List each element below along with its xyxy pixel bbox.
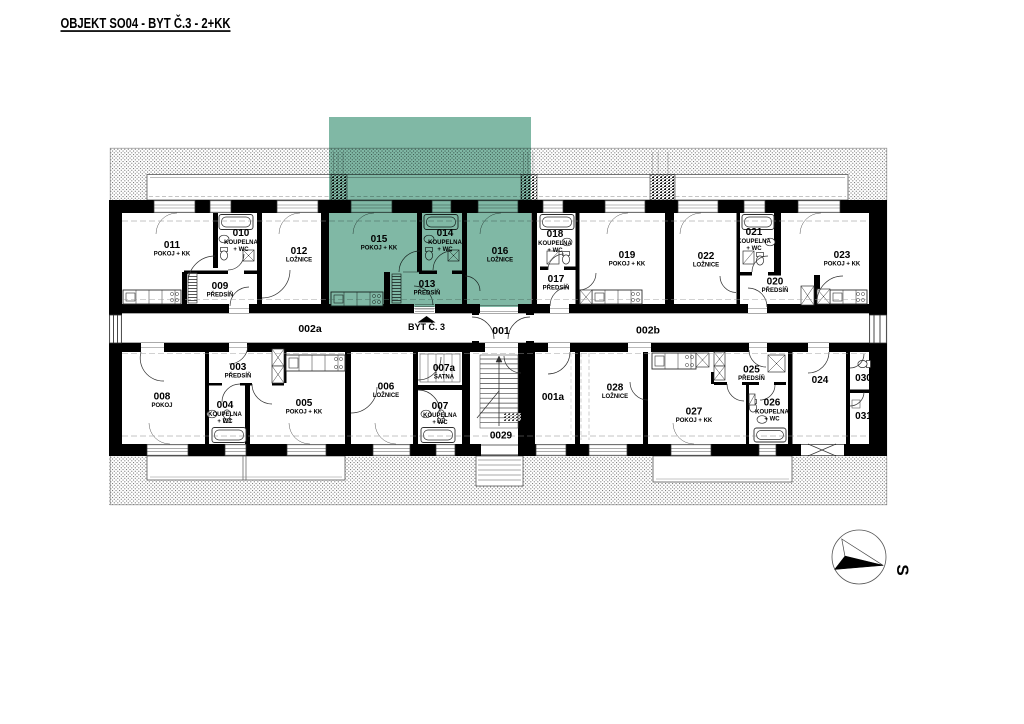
svg-text:ŠATNA: ŠATNA — [434, 373, 455, 381]
svg-text:KOUPELNA: KOUPELNA — [208, 412, 242, 418]
svg-text:001a: 001a — [542, 392, 565, 403]
svg-text:027: 027 — [686, 407, 703, 418]
svg-text:003: 003 — [230, 362, 247, 373]
svg-text:007a: 007a — [433, 363, 456, 374]
svg-text:KOUPELNA: KOUPELNA — [224, 240, 258, 246]
svg-text:031: 031 — [855, 411, 872, 422]
svg-text:KOUPELNA: KOUPELNA — [538, 241, 572, 247]
svg-text:022: 022 — [698, 251, 715, 262]
svg-text:005: 005 — [296, 398, 313, 409]
svg-text:LOŽNICE: LOŽNICE — [373, 391, 399, 399]
svg-text:006: 006 — [378, 382, 395, 393]
svg-text:+ WC: + WC — [547, 248, 563, 254]
svg-text:KOUPELNA: KOUPELNA — [737, 239, 771, 245]
svg-text:024: 024 — [812, 375, 829, 386]
svg-text:0029: 0029 — [490, 431, 513, 442]
svg-text:019: 019 — [619, 250, 636, 261]
svg-text:010: 010 — [233, 228, 250, 239]
svg-text:POKOJ + KK: POKOJ + KK — [154, 252, 191, 258]
svg-text:025: 025 — [743, 365, 760, 376]
svg-text:KOUPELNA: KOUPELNA — [755, 410, 789, 416]
svg-text:PŘEDSÍŇ: PŘEDSÍŇ — [207, 291, 234, 299]
svg-text:+ WC: + WC — [217, 419, 233, 425]
svg-text:POKOJ + KK: POKOJ + KK — [286, 410, 323, 416]
svg-text:002a: 002a — [298, 323, 322, 335]
svg-text:+ WC: + WC — [233, 247, 249, 253]
svg-text:012: 012 — [291, 246, 308, 257]
svg-text:POKOJ + KK: POKOJ + KK — [609, 262, 646, 268]
svg-text:023: 023 — [834, 250, 851, 261]
svg-text:LOŽNICE: LOŽNICE — [286, 256, 312, 264]
svg-text:OBJEKT SO04 - BYT Č.3 - 2+KK: OBJEKT SO04 - BYT Č.3 - 2+KK — [61, 14, 231, 32]
svg-text:S: S — [893, 564, 912, 575]
svg-text:004: 004 — [217, 400, 234, 411]
svg-text:018: 018 — [547, 229, 564, 240]
svg-text:008: 008 — [154, 392, 171, 403]
svg-text:PŘEDSÍŇ: PŘEDSÍŇ — [738, 374, 765, 382]
svg-text:021: 021 — [746, 227, 763, 238]
svg-text:LOŽNICE: LOŽNICE — [602, 392, 628, 400]
svg-text:009: 009 — [212, 281, 229, 292]
svg-text:POKOJ + KK: POKOJ + KK — [676, 418, 713, 424]
svg-text:001: 001 — [492, 325, 510, 337]
svg-text:002b: 002b — [636, 325, 660, 337]
svg-text:028: 028 — [607, 383, 624, 394]
svg-text:PŘEDSÍŇ: PŘEDSÍŇ — [225, 372, 252, 380]
svg-text:017: 017 — [548, 274, 565, 285]
svg-text:+ WC: + WC — [764, 417, 780, 423]
svg-text:011: 011 — [164, 240, 181, 251]
svg-text:007: 007 — [432, 401, 449, 412]
svg-text:020: 020 — [767, 277, 784, 288]
svg-text:PŘEDSÍŇ: PŘEDSÍŇ — [543, 284, 570, 292]
svg-text:+ WC: + WC — [432, 420, 448, 426]
svg-text:LOŽNICE: LOŽNICE — [693, 261, 719, 269]
svg-text:BYT Č. 3: BYT Č. 3 — [408, 321, 445, 332]
svg-text:KOUPELNA: KOUPELNA — [423, 413, 457, 419]
svg-text:PŘEDSÍŇ: PŘEDSÍŇ — [762, 286, 789, 294]
svg-text:+ WC: + WC — [746, 246, 762, 252]
svg-text:030: 030 — [855, 373, 872, 384]
svg-text:026: 026 — [764, 398, 781, 409]
svg-text:POKOJ + KK: POKOJ + KK — [824, 262, 861, 268]
svg-text:POKOJ: POKOJ — [151, 403, 172, 409]
